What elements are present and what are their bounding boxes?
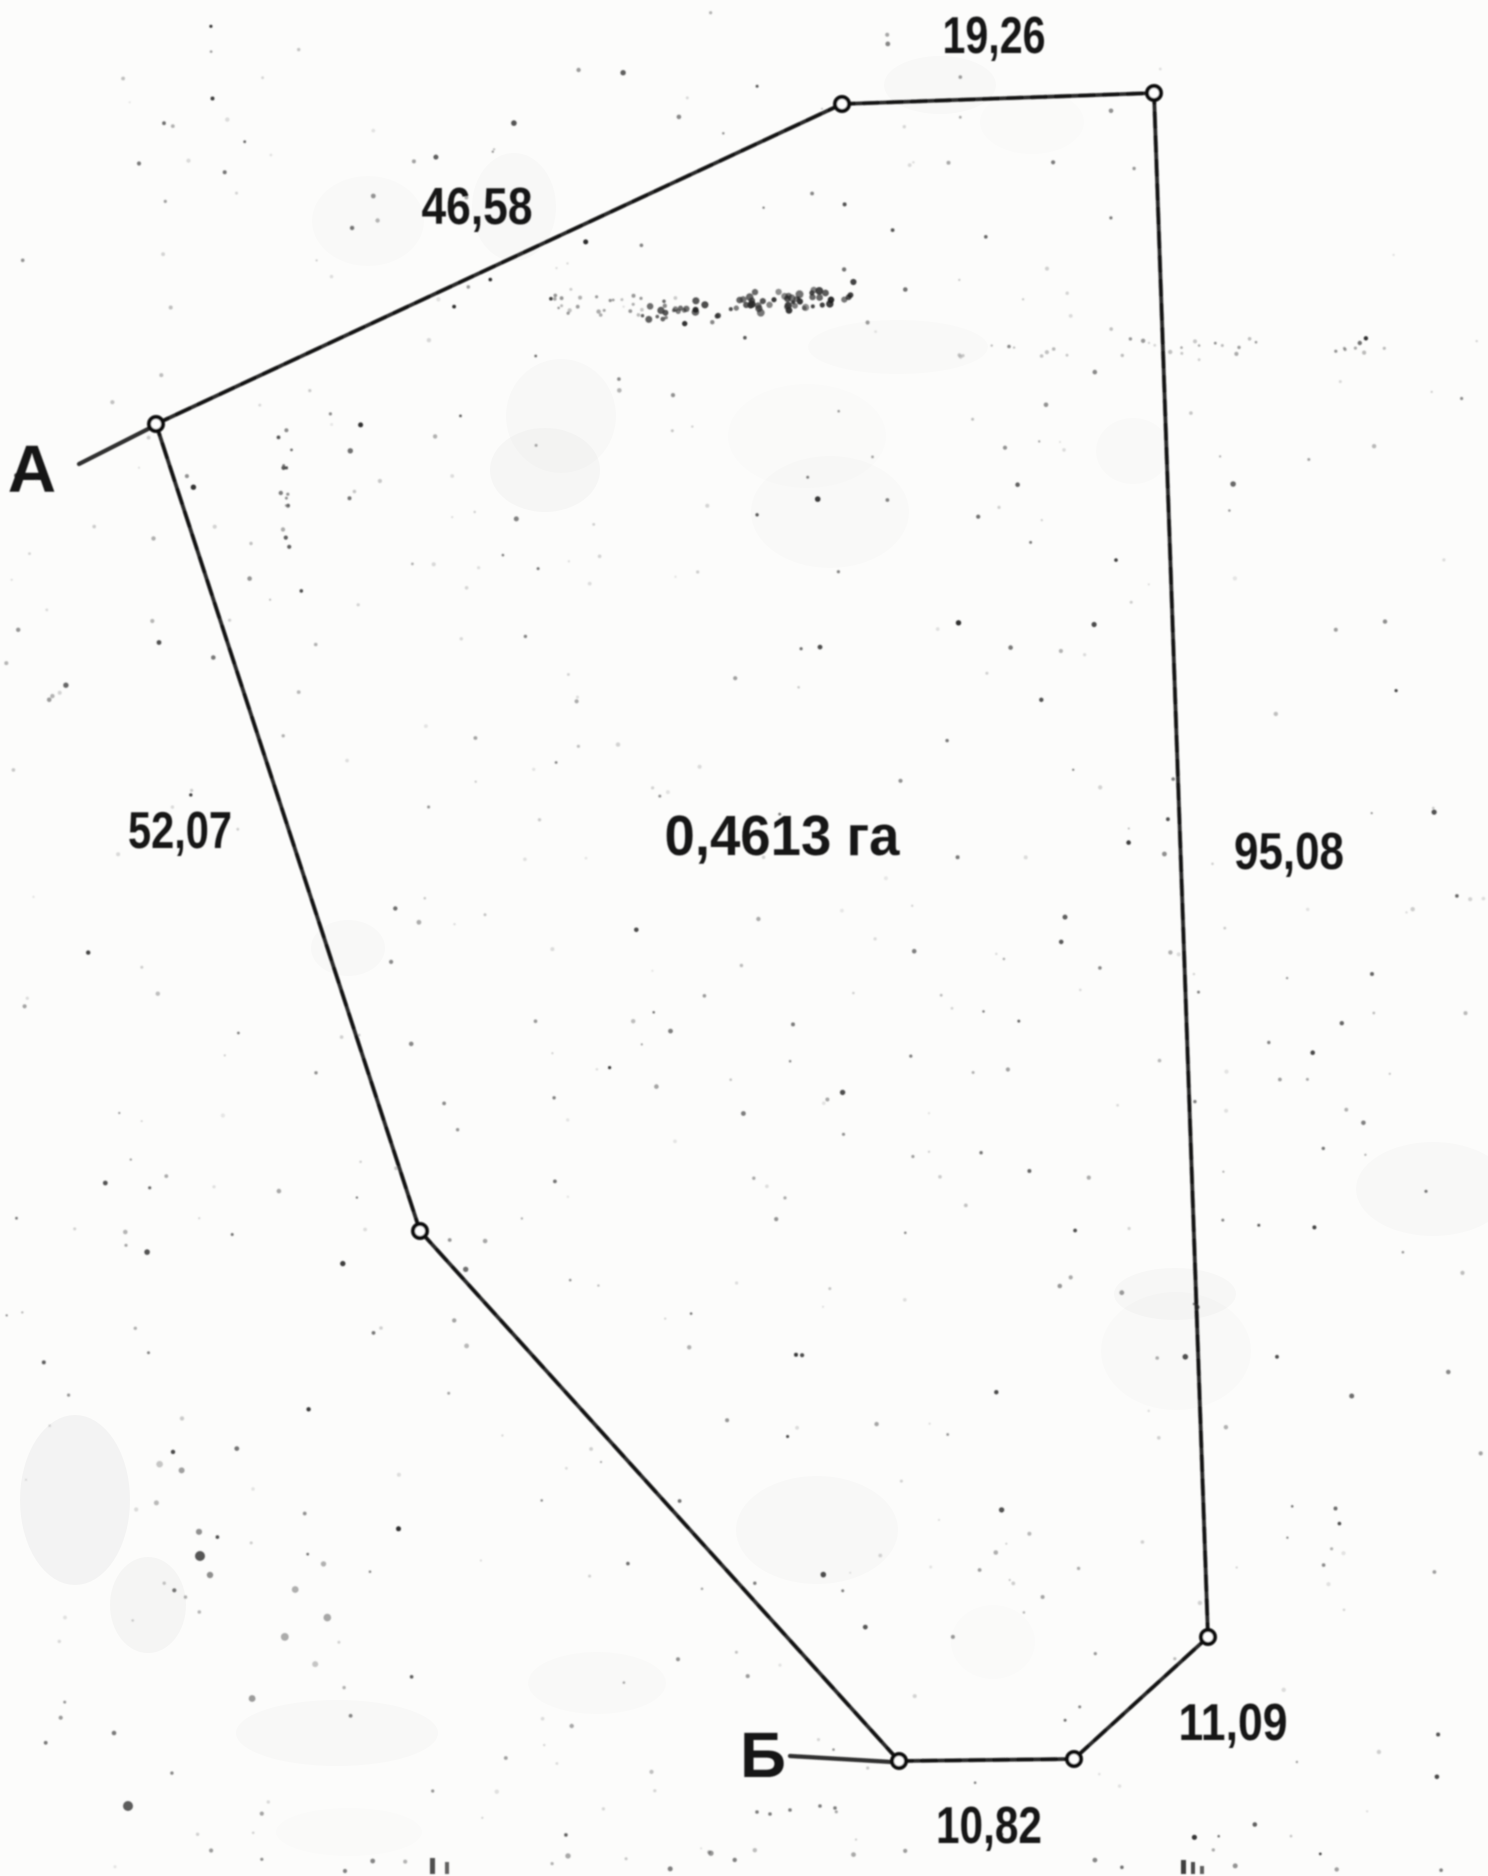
svg-text:46,58: 46,58 — [422, 178, 533, 236]
svg-text:52,07: 52,07 — [128, 802, 232, 860]
svg-text:0,4613 га: 0,4613 га — [665, 804, 901, 868]
svg-text:А: А — [8, 432, 56, 507]
svg-text:95,08: 95,08 — [1234, 823, 1344, 881]
svg-text:19,26: 19,26 — [943, 7, 1046, 65]
svg-text:11,09: 11,09 — [1179, 1694, 1288, 1752]
svg-text:10,82: 10,82 — [936, 1797, 1042, 1855]
svg-text:Б: Б — [740, 1719, 786, 1791]
